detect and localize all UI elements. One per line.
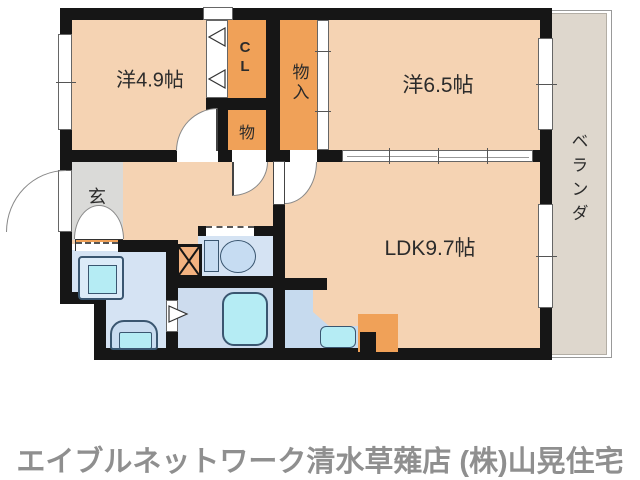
storage-small-label: 物 bbox=[239, 119, 255, 143]
entrance-label: 玄 bbox=[88, 183, 106, 209]
pipe-space-x-icon bbox=[179, 247, 199, 275]
wall-left-2 bbox=[60, 128, 72, 170]
wall-kitchen-stub bbox=[360, 332, 376, 360]
wall-right-1 bbox=[540, 8, 552, 40]
wall-wash-bath-2 bbox=[166, 332, 178, 348]
toilet-door-icon bbox=[206, 226, 254, 236]
kitchen-sink-icon bbox=[320, 326, 356, 348]
window-east-6_5-icon bbox=[538, 38, 553, 130]
washroom-entry-icon bbox=[76, 242, 118, 251]
wall-bottom bbox=[94, 348, 552, 360]
wall-mid-1 bbox=[60, 150, 177, 162]
wall-right-2 bbox=[540, 128, 552, 206]
bathroom-door-triangle-icon bbox=[167, 304, 189, 324]
ldk-label: LDK9.7帖 bbox=[384, 232, 475, 262]
sliding-partition-icon bbox=[342, 150, 533, 162]
wall-mid-4 bbox=[317, 150, 342, 162]
closet-cl-label: CL bbox=[237, 39, 254, 77]
storage-in-label: 物入 bbox=[287, 63, 312, 103]
wall-mid-5 bbox=[533, 150, 552, 162]
wall-left-1 bbox=[60, 8, 72, 36]
wall-top bbox=[60, 8, 552, 20]
wall-right-3 bbox=[540, 306, 552, 360]
wall-mid-2 bbox=[218, 150, 232, 162]
wall-above-washroom bbox=[118, 240, 178, 252]
window-west-icon bbox=[58, 34, 72, 130]
wall-kitchen bbox=[285, 278, 327, 290]
entrance-door-swing-arc bbox=[6, 170, 66, 232]
toilet-tank-icon bbox=[204, 240, 219, 272]
bathtub-icon bbox=[222, 292, 268, 346]
ldk-door-leaf-icon bbox=[273, 161, 285, 205]
folding-door-triangles-icon bbox=[206, 20, 228, 98]
veranda-label: ベランダ bbox=[566, 132, 591, 228]
storage-in-door-icon bbox=[317, 20, 329, 150]
wall-closet-column bbox=[266, 20, 280, 150]
washbasin-icon bbox=[110, 320, 158, 350]
washing-machine-pan-icon bbox=[78, 256, 124, 300]
toilet-icon bbox=[220, 240, 256, 273]
wall-cl-divider bbox=[228, 98, 266, 110]
floor-plan: 洋4.9帖 CL 物 物入 洋6.5帖 LDK9.7帖 玄 ベランダ エイブルネ… bbox=[0, 0, 640, 480]
agency-name: エイブルネットワーク清水草薙店 (株)山晃住宅 bbox=[0, 438, 640, 480]
window-east-ldk-icon bbox=[538, 204, 553, 308]
window-top-icon bbox=[203, 7, 233, 20]
room-6_5-label: 洋6.5帖 bbox=[402, 69, 473, 99]
room-4_9-label: 洋4.9帖 bbox=[116, 64, 184, 93]
